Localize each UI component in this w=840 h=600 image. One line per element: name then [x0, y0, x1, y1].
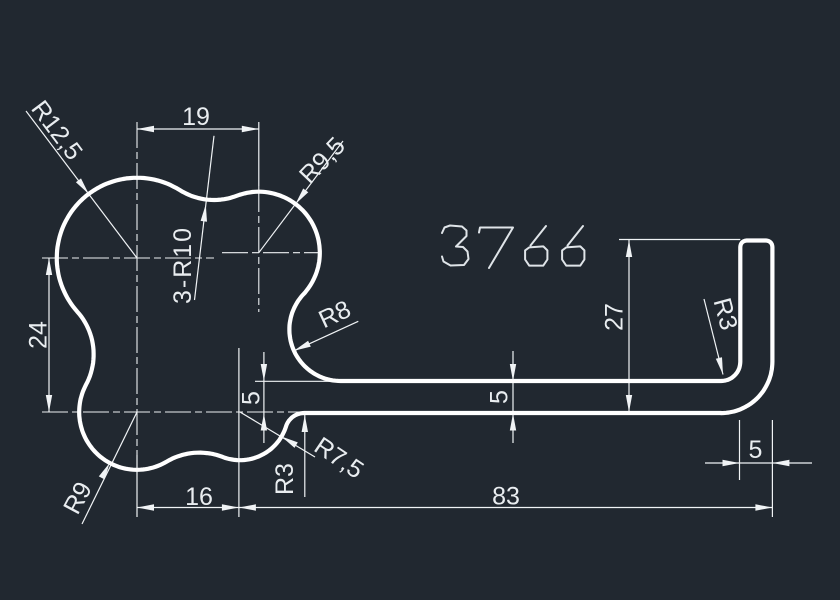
svg-text:5: 5: [486, 390, 514, 404]
svg-text:5: 5: [238, 391, 266, 405]
svg-text:19: 19: [182, 103, 210, 131]
svg-text:83: 83: [492, 483, 520, 511]
svg-text:3-R10: 3-R10: [169, 226, 197, 304]
svg-text:16: 16: [185, 483, 213, 511]
svg-text:24: 24: [25, 321, 53, 349]
svg-text:5: 5: [749, 436, 763, 464]
svg-text:R3: R3: [271, 463, 299, 495]
svg-text:27: 27: [601, 303, 629, 331]
